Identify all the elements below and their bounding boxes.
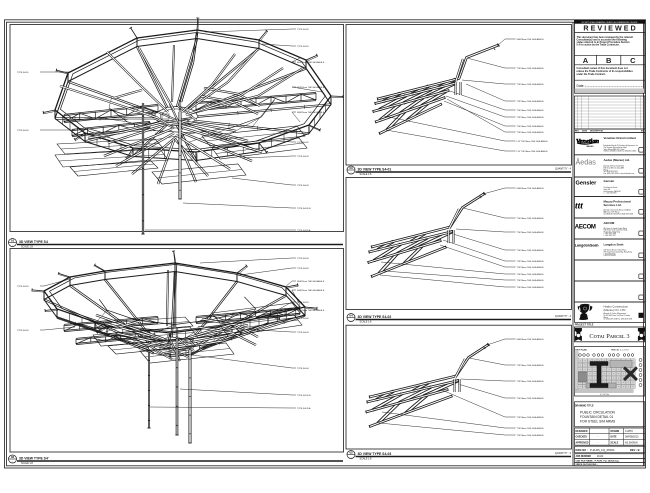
svg-text:TYPE S4-02: TYPE S4-02 (17, 286, 29, 288)
svg-text:3D VIEW TYPE S4: 3D VIEW TYPE S4 (19, 240, 48, 244)
svg-text:Tel: (853) 2871 8226 Fax: (85: Tel: (853) 2871 8226 Fax: (853) 2871 822… (604, 213, 634, 215)
svg-text:TYPE S4-03: TYPE S4-03 (297, 156, 309, 158)
svg-text:3D VIEW TYPE S4-01: 3D VIEW TYPE S4-01 (358, 168, 392, 172)
svg-text:08/FEB/2010: 08/FEB/2010 (625, 437, 639, 439)
svg-text:T76/76mm THK G&S ANGLE: T76/76mm THK G&S ANGLE (517, 427, 545, 430)
svg-text:TYPE S4-05: TYPE S4-05 (297, 29, 309, 31)
svg-text:SHS76mm THK G&S ANGLE: SHS76mm THK G&S ANGLE (297, 86, 325, 89)
svg-text:3D VIEW TYPE S4-03: 3D VIEW TYPE S4-03 (358, 452, 392, 456)
svg-text:SHS76mm THK G&S ANGLE: SHS76mm THK G&S ANGLE (297, 309, 325, 312)
svg-text:TYPE S4-02: TYPE S4-02 (17, 130, 29, 132)
svg-text:T76/76mm THK G&S ANGLE: T76/76mm THK G&S ANGLE (517, 67, 545, 70)
svg-text:L76 T76/76mm THK G&S ANGLE: L76 T76/76mm THK G&S ANGLE (517, 140, 549, 143)
svg-text:SCALE: SCALE (611, 441, 619, 444)
svg-text:A: A (583, 56, 589, 65)
svg-text:05: 05 (349, 451, 353, 455)
svg-text:DWG NO :: DWG NO : (576, 449, 588, 452)
svg-text:TYPE S4-04: TYPE S4-04 (297, 185, 309, 187)
svg-text:Macau: Macau (604, 169, 609, 171)
svg-text:T76/76mm THK G&S ANGLE: T76/76mm THK G&S ANGLE (517, 125, 545, 128)
svg-text:Åedas: Åedas (576, 158, 597, 167)
svg-text:TYPE S4-05 A: TYPE S4-05 A (297, 229, 311, 232)
svg-text:P-FLR5_FQ_05004: P-FLR5_FQ_05004 (590, 448, 615, 452)
svg-text:TYPE S4-05 B: TYPE S4-05 B (297, 395, 311, 397)
svg-text:Macau: Macau (604, 317, 609, 319)
svg-text:T76/76mm THK G&S ANGLE: T76/76mm THK G&S ANGLE (517, 266, 545, 269)
svg-text:T76/76mm THK G&S ANGLE: T76/76mm THK G&S ANGLE (517, 364, 545, 367)
svg-text:02: 02 (11, 455, 15, 459)
svg-text:03: 03 (349, 166, 353, 170)
svg-text:T76/76mm THK G&S ANGLE: T76/76mm THK G&S ANGLE (517, 434, 545, 437)
svg-text:SCALE 1:8: SCALE 1:8 (21, 246, 33, 249)
svg-text:Tel: (853) 2875 5621: Tel: (853) 2875 5621 (604, 171, 618, 173)
svg-text:B: B (606, 56, 612, 65)
svg-text:3D VIEW TYPE S4-02: 3D VIEW TYPE S4-02 (358, 315, 392, 319)
svg-text:C: C (630, 56, 636, 65)
svg-text:TYPE S4-02: TYPE S4-02 (297, 46, 309, 48)
svg-text:T76/76mm THK G&S ANGLE: T76/76mm THK G&S ANGLE (517, 83, 545, 86)
svg-text:f. +852 3922 9797: f. +852 3922 9797 (604, 235, 617, 237)
svg-text:Date :: Date : (577, 84, 586, 88)
svg-text:APPROVED: APPROVED (576, 441, 589, 444)
svg-text:SHS76mm THK G&S ANGLE: SHS76mm THK G&S ANGLE (297, 289, 325, 292)
svg-text:SHS76mm THK G&S ANGLE: SHS76mm THK G&S ANGLE (297, 280, 325, 283)
svg-text:TYPE S4-04: TYPE S4-04 (297, 368, 309, 370)
svg-text:Langdon Seah: Langdon Seah (604, 243, 624, 247)
svg-text:under the Trade Contract.: under the Trade Contract. (577, 73, 606, 76)
svg-text:T76/76mm THK G&S ANGLE: T76/76mm THK G&S ANGLE (517, 397, 545, 400)
svg-text:TYPE S4-05: TYPE S4-05 (297, 268, 309, 270)
svg-text:L76 T76/76mm THK G&S ANGLE: L76 T76/76mm THK G&S ANGLE (517, 150, 549, 153)
svg-text:Gensler: Gensler (576, 181, 598, 187)
svg-text:PARCEL 1, LOT 2: PARCEL 1, LOT 2 (611, 349, 629, 352)
svg-text:T76/76mm THK G&S ANGLE: T76/76mm THK G&S ANGLE (517, 249, 545, 252)
svg-text:JOB NUMBER: JOB NUMBER (576, 456, 592, 458)
svg-text:PROJECT TITLE: PROJECT TITLE (575, 324, 594, 327)
svg-text:T76/76mm THK G&S ANGLE: T76/76mm THK G&S ANGLE (517, 416, 545, 419)
svg-text:R E V I E W E D: R E V I E W E D (583, 24, 635, 33)
svg-text:SHS76mm THK G&S ANGLE: SHS76mm THK G&S ANGLE (297, 111, 325, 114)
svg-text:-: - (351, 456, 352, 459)
svg-text:21124: 21124 (597, 456, 604, 458)
svg-text:TYPE S4-05 B: TYPE S4-05 B (297, 208, 311, 210)
svg-text:01: 01 (11, 239, 15, 243)
svg-text:04: 04 (349, 314, 353, 318)
svg-text:AECOM: AECOM (575, 225, 596, 231)
svg-text:SCALE 1:8: SCALE 1:8 (360, 321, 372, 324)
svg-text:TYPE S4-02: TYPE S4-02 (297, 142, 309, 144)
svg-text:T76/76mm THK G&S ANGLE: T76/76mm THK G&S ANGLE (517, 109, 545, 112)
svg-text:TYPE S4-02: TYPE S4-02 (17, 330, 29, 332)
svg-text:SCALE 1:8: SCALE 1:8 (360, 173, 372, 176)
svg-text:FOUNTAIN DETAIL 01: FOUNTAIN DETAIL 01 (580, 415, 613, 419)
svg-text:DRAWING TITLE: DRAWING TITLE (575, 405, 594, 408)
svg-text:-: - (351, 171, 352, 174)
svg-text:T76/76mm THK G&S ANGLE: T76/76mm THK G&S ANGLE (517, 217, 545, 220)
svg-text:SHS76mm THK G&S ANGLE: SHS76mm THK G&S ANGLE (517, 187, 545, 190)
svg-text:DRAWN: DRAWN (611, 430, 620, 433)
svg-text:Cᴏᴛᴀɪ Pᴀʀᴄᴇʟ 3: Cᴏᴛᴀɪ Pᴀʀᴄᴇʟ 3 (589, 333, 629, 340)
svg-text:f +852 2576 0416: f +852 2576 0416 (604, 255, 616, 257)
svg-text:TYPE S4-04: TYPE S4-04 (297, 332, 309, 334)
svg-text:Telefone: (853) 81 118111 Fa: Telefone: (853) 81 118111 Fax: (853) 81 … (604, 151, 637, 153)
svg-text:AECOM: AECOM (604, 221, 615, 225)
svg-text:CHECKED: CHECKED (576, 437, 588, 439)
svg-text:T76/76mm THK G&S ANGLE: T76/76mm THK G&S ANGLE (517, 231, 545, 234)
svg-text:SHS76mm THK G&S ANGLE: SHS76mm THK G&S ANGLE (297, 61, 325, 64)
svg-text:T76/76mm THK G&S ANGLE: T76/76mm THK G&S ANGLE (517, 131, 545, 134)
svg-text:AS SHOWN: AS SHOWN (625, 441, 638, 444)
svg-text:SHS76mm THK G&S ANGLE: SHS76mm THK G&S ANGLE (517, 38, 545, 41)
svg-text:Fax: (853) 2875 5620 e: maca: Fax: (853) 2875 5620 e: macau@aedas.com (604, 173, 635, 175)
svg-text:TYPE S4-01: TYPE S4-01 (17, 72, 29, 74)
svg-text:T76/76mm THK G&S ANGLE: T76/76mm THK G&S ANGLE (517, 116, 545, 119)
svg-text:TYPE S4-03: TYPE S4-03 (297, 258, 309, 260)
svg-text:5.4 for action by the Tra: 5.4 for action by the Trade Contractor. (577, 44, 620, 47)
svg-text:Venetian Orient Limited: Venetian Orient Limited (604, 136, 637, 140)
svg-text:(Macau) CO. LTD.: (Macau) CO. LTD. (604, 308, 627, 312)
svg-text:TYPE S4-05 A: TYPE S4-05 A (297, 407, 311, 410)
svg-text:DESIGNED: DESIGNED (576, 431, 588, 433)
svg-text:T76/76mm THK G&S ANGLE: T76/76mm THK G&S ANGLE (517, 100, 545, 103)
svg-text:Aedas (Macau) Ltd.: Aedas (Macau) Ltd. (604, 158, 631, 162)
svg-text:KEY PLAN: KEY PLAN (576, 349, 587, 352)
svg-text:PUBLIC CIRCULATION: PUBLIC CIRCULATION (580, 411, 616, 415)
svg-text:XREFS ON THIS DWG :: XREFS ON THIS DWG : (576, 464, 598, 466)
svg-text:SCALE 1:8: SCALE 1:8 (360, 458, 372, 461)
svg-text:3D VIEW TYPE S4': 3D VIEW TYPE S4' (19, 457, 49, 461)
svg-text:QUANTITY : 4: QUANTITY : 4 (555, 167, 572, 170)
svg-text:0 5 10 25m: 0 5 10 25m (600, 394, 609, 396)
svg-text:CAD FILE NAME : P-FLR5_FQ_0500: CAD FILE NAME : P-FLR5_FQ_05004.dwg (576, 460, 620, 463)
svg-text:SCALE 1:8: SCALE 1:8 (21, 462, 33, 465)
svg-text:ttt: ttt (575, 202, 583, 212)
svg-text:T76/76mm THK G&S ANGLE: T76/76mm THK G&S ANGLE (517, 279, 545, 282)
svg-text:LangdonSeah: LangdonSeah (575, 244, 599, 248)
svg-text:Gensler: Gensler (604, 179, 616, 183)
svg-text:Tel: (853) 2875 3234 Fax: (85: Tel: (853) 2875 3234 Fax: (853) 2875 323… (604, 319, 633, 321)
svg-text:DATE: DATE (611, 436, 618, 439)
svg-text:FOR STEEL S/M ARMS: FOR STEEL S/M ARMS (580, 420, 616, 424)
svg-text:MACAO: MACAO (587, 145, 594, 148)
svg-text:TYPE S4-02: TYPE S4-02 (297, 318, 309, 320)
svg-text:SHS76mm THK G&S ANGLE: SHS76mm THK G&S ANGLE (517, 338, 545, 341)
svg-text:T76/76mm THK G&S ANGLE: T76/76mm THK G&S ANGLE (517, 380, 545, 383)
svg-text:C.WHO: C.WHO (625, 431, 633, 433)
svg-text:QUANTITY : 4: QUANTITY : 4 (555, 452, 572, 455)
svg-text:-: - (12, 460, 13, 463)
svg-text:REV : B: REV : B (630, 448, 640, 452)
svg-text:T76/76mm THK G&S ANGLE: T76/76mm THK G&S ANGLE (517, 260, 545, 263)
svg-text:-: - (351, 319, 352, 322)
svg-text:Services Ltd.: Services Ltd. (604, 203, 622, 207)
svg-text:-: - (12, 244, 13, 247)
svg-text:T76/76mm THK G&S ANGLE: T76/76mm THK G&S ANGLE (517, 273, 545, 276)
svg-text:TYPE S4-02: TYPE S4-02 (297, 302, 309, 304)
svg-text:QUANTITY : 4: QUANTITY : 4 (555, 315, 572, 318)
svg-text:T76/76mm THK G&S ANGLE: T76/76mm THK G&S ANGLE (517, 286, 545, 289)
